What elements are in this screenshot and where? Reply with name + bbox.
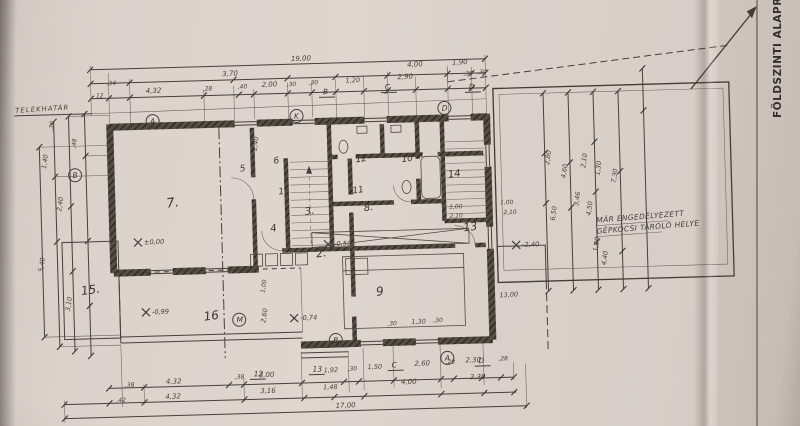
window-glass-line	[416, 343, 438, 344]
dimension-text: 1,80	[592, 236, 602, 251]
dimension-text: 3,70	[222, 69, 238, 78]
elevation-mark	[134, 238, 142, 246]
dimension-text: 2,30	[470, 373, 486, 381]
window-glass-line	[416, 340, 438, 341]
room-number: 16	[203, 308, 220, 324]
window-glass-line	[361, 341, 383, 342]
dimension-text: 4,00	[401, 378, 417, 386]
window-glass-line	[488, 227, 489, 249]
boundary-label: TELEKHATÁR	[15, 103, 70, 115]
toilet	[402, 180, 411, 193]
elevation-value: -0,52	[334, 240, 351, 248]
room-number: 11	[352, 185, 365, 196]
floor-plan-drawing: TELEKHATÁR MÁR ENGEDÉLYEZETT GÉPKOCSI TÁ…	[0, 0, 800, 426]
grid-letter: C	[385, 82, 391, 91]
dimension-text: 1,00	[500, 199, 514, 206]
room-number: 1	[278, 187, 285, 198]
dimension-text: 4,00	[407, 60, 423, 69]
dimension-text: ,42	[116, 397, 126, 404]
dimension-text: 1,30	[593, 160, 603, 175]
room-number: 6	[273, 156, 280, 167]
dimension-line	[65, 392, 517, 405]
room-number: 8.	[363, 202, 374, 214]
room-number: 12	[355, 154, 368, 165]
dimension-text: 3,10	[64, 296, 74, 311]
window-glass-line	[206, 272, 228, 273]
dimension-text: 1,30	[411, 318, 426, 326]
dimension-text: ,30	[309, 79, 319, 86]
stair-tread	[446, 148, 485, 149]
dimension-text: 4,32	[146, 87, 162, 96]
dimension-line	[65, 406, 527, 419]
dimension-text: 2,60	[414, 359, 430, 367]
elevation-value: -2,40	[522, 240, 539, 248]
dimension-text: 2,10	[503, 209, 517, 216]
elevation-mark	[290, 314, 298, 322]
dimension-line	[54, 122, 60, 347]
window-glass-line	[235, 122, 257, 123]
window-opening	[449, 113, 471, 123]
kitchen-unit	[280, 253, 292, 265]
window-glass-line	[486, 145, 487, 167]
grid-letter: 12	[254, 369, 264, 378]
room-number: 5	[239, 164, 246, 175]
dimension-text: 2,40	[55, 196, 65, 211]
drawing-title: FÖLDSZINTI ALAPRAJZ	[770, 0, 784, 118]
dimension-text: ,48	[70, 138, 78, 149]
elevation-mark	[512, 241, 520, 249]
dimension-text: ,30	[387, 320, 397, 327]
dimension-text: 2,10	[449, 212, 463, 219]
dimension-text: ,30	[348, 365, 358, 372]
window-opening	[416, 337, 438, 347]
entry-step	[301, 352, 348, 353]
dimension-text: ,30	[463, 70, 473, 77]
dimension-text: 4,32	[165, 392, 181, 400]
dimension-text: ,34	[106, 80, 116, 87]
dimension-line	[642, 68, 648, 288]
dimension-text: 1,40	[40, 154, 50, 169]
dimension-text: 19,00	[291, 54, 312, 63]
bathtub	[421, 156, 441, 199]
window-glass-line	[293, 123, 315, 124]
room-number: 15.	[80, 282, 101, 298]
dimension-lines	[34, 51, 655, 422]
dimension-line	[618, 91, 624, 289]
marker-letter: A	[444, 353, 450, 362]
dimension-text: 2,00	[261, 80, 277, 89]
marker-letter: B	[333, 336, 338, 345]
dimension-text: ,30	[287, 81, 297, 88]
window-opening	[235, 119, 257, 129]
dimension-text: 4,32	[166, 377, 182, 385]
dimension-text: 1,00	[449, 203, 463, 210]
stair-tread	[445, 141, 484, 142]
room-number: 10	[401, 154, 414, 165]
dimension-text: 1,90	[452, 58, 468, 67]
dimension-text: 3,46	[572, 191, 582, 206]
grid-letter: D	[469, 82, 475, 91]
room-number: 3.	[304, 206, 315, 218]
dimension-text: 1,48	[323, 383, 338, 391]
dimension-text: 3,16	[260, 387, 276, 395]
dimension-text: ,38	[125, 382, 135, 389]
window-opening	[361, 338, 383, 348]
stair-tread	[290, 161, 328, 162]
marker-letter: M	[236, 315, 243, 324]
sink	[391, 125, 401, 132]
elevation-mark	[142, 308, 150, 316]
marker-letter: B	[72, 171, 77, 180]
room-number: 4	[270, 223, 278, 235]
elevation-value: -0,99	[152, 308, 169, 316]
dimension-text: ,30	[433, 317, 443, 324]
dimension-line	[84, 114, 91, 356]
dimension-text: 7,30	[610, 168, 620, 183]
window-glass-line	[489, 145, 490, 167]
window-glass-line	[365, 118, 387, 119]
entry-step	[301, 357, 348, 358]
dimension-line	[593, 92, 599, 290]
section-line	[219, 128, 225, 358]
stair-tread	[292, 230, 330, 231]
window-glass-line	[449, 116, 471, 117]
dimension-line	[68, 116, 75, 351]
windows	[147, 112, 498, 354]
dimension-text: 12	[96, 92, 104, 99]
dimension-text: 4,50	[585, 201, 595, 216]
pillow	[346, 258, 368, 275]
dimension-text: ,38	[235, 374, 245, 381]
room-number: 9	[375, 284, 384, 299]
dimension-line	[568, 92, 574, 290]
bed	[342, 253, 465, 328]
window-glass-line	[151, 273, 173, 274]
grid-letter: B	[323, 87, 328, 96]
dimension-text: 1,92	[324, 366, 339, 374]
window-glass-line	[361, 344, 383, 345]
room-number: 13	[463, 220, 479, 235]
window-opening	[151, 267, 173, 277]
dimension-line	[90, 59, 485, 70]
dimension-text: 4,60	[559, 163, 569, 178]
stair-tread	[447, 198, 486, 199]
dimension-text: 13,00	[499, 290, 518, 299]
dimension-text: 6,50	[549, 206, 559, 221]
stair-tread	[447, 184, 486, 185]
window-glass-line	[365, 121, 387, 122]
window-glass-line	[491, 227, 492, 249]
elevation-value: ±0,00	[144, 238, 164, 247]
dimension-text: 2,40	[251, 136, 261, 151]
marker-letter: A	[149, 117, 155, 126]
dimension-text: ,30	[48, 121, 56, 132]
window-opening	[365, 115, 387, 125]
room-number: 2.	[315, 246, 327, 260]
dimension-text: ,28	[498, 355, 508, 362]
sink	[357, 126, 367, 133]
dimension-text: 17,00	[335, 401, 356, 410]
grid-letter: D	[478, 356, 484, 365]
dashed-boundary-line	[447, 45, 732, 82]
dimension-text: 2,10	[579, 153, 589, 168]
marker-letter: D	[442, 103, 448, 112]
grid-letter: C	[391, 360, 397, 369]
dimension-text: 1,00	[260, 279, 269, 293]
window-glass-line	[235, 125, 257, 126]
window-glass-line	[206, 268, 228, 269]
room-number: 14	[447, 168, 461, 181]
kitchen-unit	[295, 253, 307, 265]
stair-tread	[446, 162, 485, 163]
terrace-16	[119, 268, 303, 343]
stair-direction-arrow	[306, 166, 314, 244]
scanned-floor-plan-photo: TELEKHATÁR MÁR ENGEDÉLYEZETT GÉPKOCSI TÁ…	[0, 0, 800, 426]
interior-walls	[252, 117, 491, 346]
dimension-text: ,30	[477, 69, 487, 76]
dimension-text: 2,80	[543, 150, 553, 165]
dimension-text: 4,40	[600, 250, 610, 265]
dimension-text: 2,90	[397, 72, 413, 81]
stair-tread	[292, 237, 330, 238]
dimension-line	[39, 147, 44, 337]
dimension-text: ,28	[203, 85, 213, 92]
room-number: 7.	[166, 195, 180, 212]
stair-tread	[447, 191, 486, 192]
dimension-text: 1,20	[345, 76, 360, 85]
dimension-text: 5,40	[37, 257, 47, 272]
grid-letter: 13	[312, 364, 322, 373]
dimension-text: 2,60	[259, 308, 269, 323]
window-glass-line	[151, 270, 173, 271]
window-opening	[485, 227, 495, 249]
dimension-text: ,40	[238, 83, 248, 90]
kitchen-unit	[265, 254, 277, 266]
elevation-value: -0,74	[300, 314, 317, 322]
toilet	[339, 140, 348, 153]
window-glass-line	[449, 119, 471, 120]
dimension-text: 1,50	[367, 363, 382, 371]
